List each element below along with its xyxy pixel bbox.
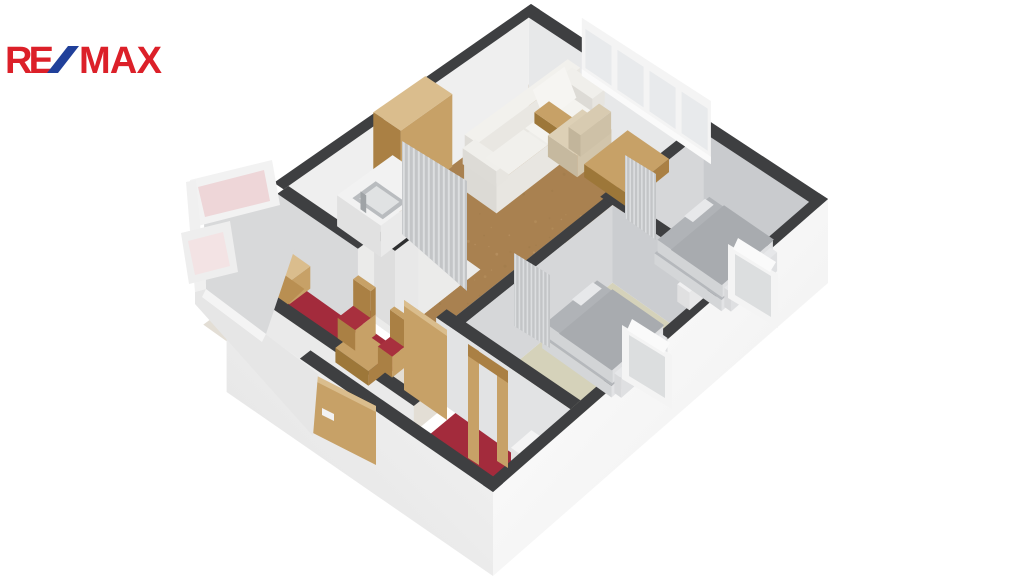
svg-text:RE: RE [5,40,54,82]
svg-text:MAX: MAX [79,40,163,82]
